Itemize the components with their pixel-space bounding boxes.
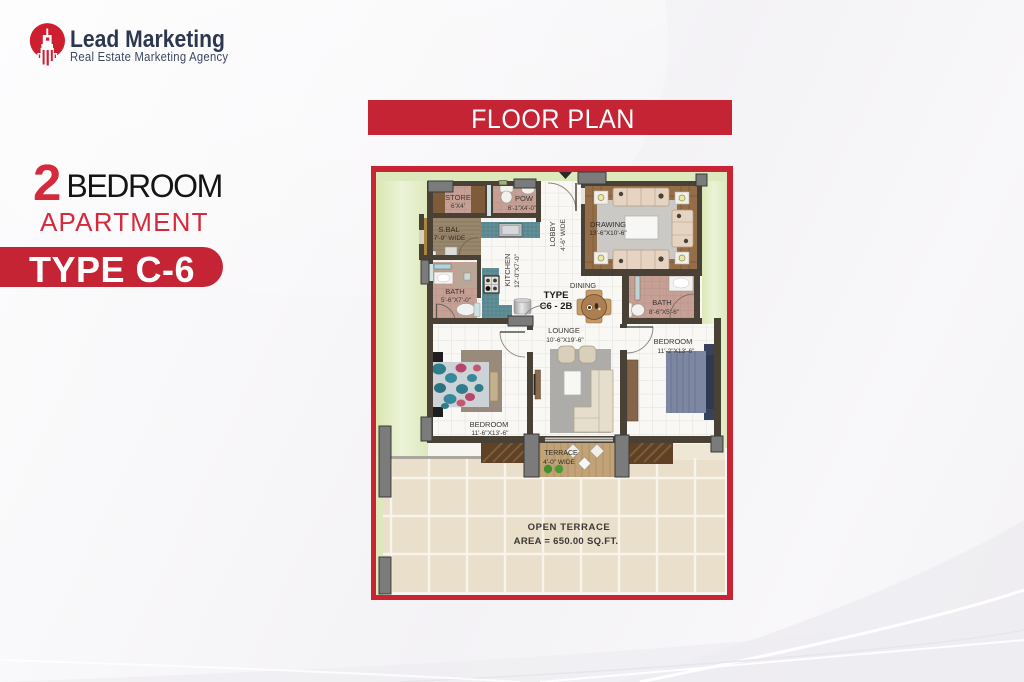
svg-text:POW: POW (515, 194, 534, 203)
svg-text:10'-6"X19'-6": 10'-6"X19'-6" (546, 337, 584, 344)
svg-text:BEDROOM: BEDROOM (654, 337, 693, 346)
svg-text:4'-0" WIDE: 4'-0" WIDE (543, 459, 575, 466)
svg-text:5'-6"X7'-0": 5'-6"X7'-0" (441, 297, 472, 304)
svg-text:12'-0"X7'-0": 12'-0"X7'-0" (514, 253, 521, 288)
svg-text:8'-6"X5'-6": 8'-6"X5'-6" (649, 309, 680, 316)
svg-text:S.BAL: S.BAL (438, 225, 459, 234)
svg-text:7'-9" WIDE: 7'-9" WIDE (434, 235, 466, 242)
svg-text:LOBBY: LOBBY (548, 221, 557, 246)
svg-text:13'-6"X10'-6": 13'-6"X10'-6" (589, 230, 627, 237)
svg-text:KITCHEN: KITCHEN (503, 254, 512, 287)
svg-text:LOUNGE: LOUNGE (548, 326, 580, 335)
svg-text:6'X4': 6'X4' (451, 203, 465, 210)
svg-text:4'-6" WIDE: 4'-6" WIDE (560, 218, 567, 250)
svg-text:AREA = 650.00 SQ.FT.: AREA = 650.00 SQ.FT. (514, 536, 619, 547)
svg-text:11'-2"X13'-6": 11'-2"X13'-6" (658, 348, 696, 355)
svg-text:TYPE: TYPE (544, 290, 569, 301)
svg-text:6'-1"X4'-0": 6'-1"X4'-0" (508, 206, 536, 212)
svg-text:C6 - 2B: C6 - 2B (540, 301, 573, 312)
svg-text:11'-6"X13'-6": 11'-6"X13'-6" (472, 430, 510, 437)
svg-text:BATH: BATH (445, 287, 464, 296)
svg-text:OPEN TERRACE: OPEN TERRACE (528, 522, 611, 533)
svg-text:TERRACE: TERRACE (544, 450, 578, 457)
svg-text:DINING: DINING (570, 281, 596, 290)
svg-text:DRAWING: DRAWING (590, 220, 626, 229)
svg-text:STORE: STORE (445, 193, 471, 202)
svg-text:BATH: BATH (652, 298, 671, 307)
svg-text:BEDROOM: BEDROOM (470, 420, 509, 429)
